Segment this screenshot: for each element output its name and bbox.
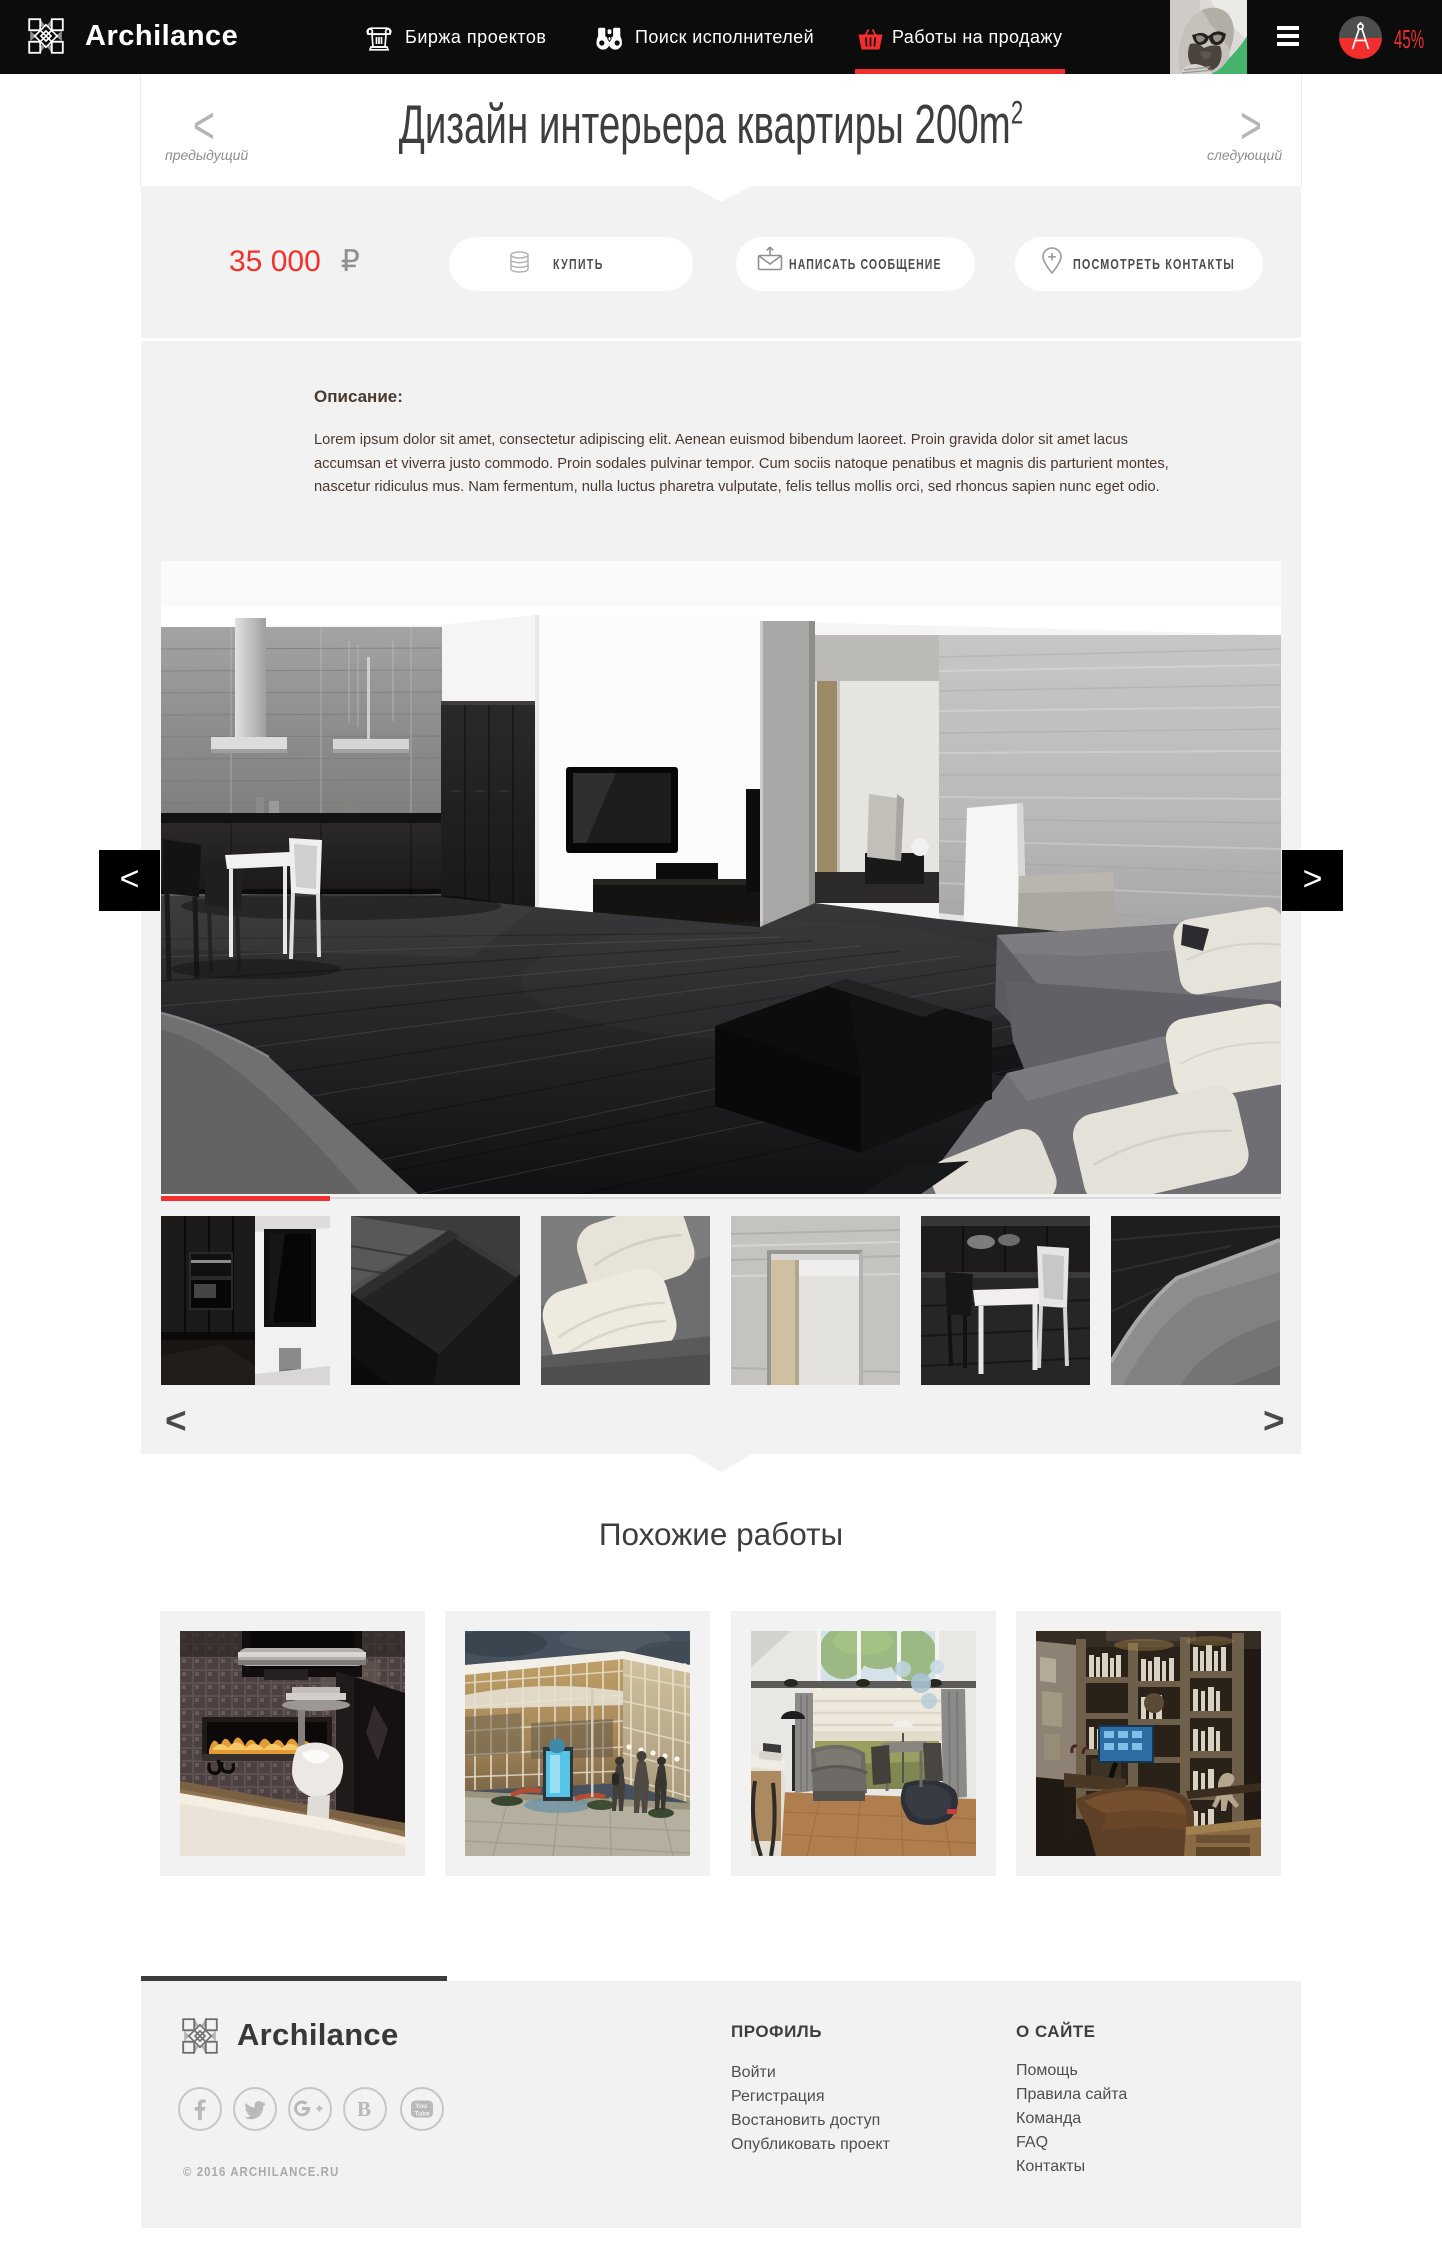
- svg-text:You: You: [415, 2103, 427, 2110]
- svg-text:B: B: [357, 2097, 371, 2121]
- svg-text:Tube: Tube: [415, 2110, 431, 2117]
